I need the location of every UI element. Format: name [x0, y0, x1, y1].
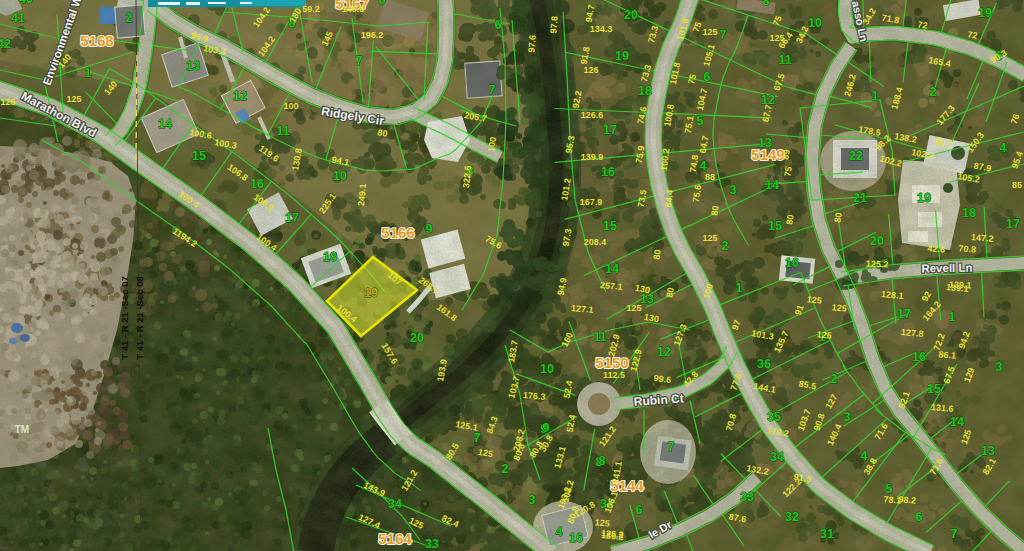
svg-text:249.1: 249.1 — [356, 183, 368, 206]
svg-text:1: 1 — [736, 281, 743, 295]
svg-text:5168: 5168 — [80, 32, 113, 49]
svg-text:14: 14 — [950, 415, 964, 429]
svg-text:80: 80 — [832, 212, 844, 224]
svg-text:196.2: 196.2 — [361, 30, 384, 40]
svg-text:9: 9 — [426, 222, 433, 236]
svg-text:18: 18 — [323, 250, 337, 264]
svg-text:15: 15 — [927, 382, 941, 396]
svg-text:5164: 5164 — [378, 530, 412, 547]
svg-text:80: 80 — [651, 249, 663, 261]
svg-text:2: 2 — [126, 11, 133, 25]
svg-text:3: 3 — [996, 360, 1003, 374]
svg-text:15: 15 — [768, 219, 782, 233]
svg-text:167.9: 167.9 — [580, 197, 603, 207]
svg-text:3: 3 — [730, 183, 737, 197]
svg-text:12: 12 — [657, 345, 671, 359]
svg-text:11: 11 — [778, 53, 791, 67]
svg-text:89: 89 — [780, 149, 792, 161]
svg-text:11: 11 — [276, 124, 289, 138]
svg-text:16: 16 — [785, 256, 799, 270]
svg-text:4: 4 — [1000, 141, 1007, 155]
svg-text:6: 6 — [495, 18, 502, 32]
svg-text:4: 4 — [556, 525, 563, 539]
svg-text:128.1: 128.1 — [881, 289, 904, 301]
svg-text:3: 3 — [844, 410, 851, 424]
svg-text:T 41 - R 21 -Sec 08: T 41 - R 21 -Sec 08 — [134, 276, 145, 359]
svg-text:88: 88 — [705, 172, 715, 182]
svg-text:33: 33 — [740, 490, 754, 504]
svg-text:20: 20 — [624, 8, 638, 22]
svg-text:75: 75 — [782, 166, 794, 178]
svg-text:98.2: 98.2 — [898, 494, 916, 505]
svg-text:5166: 5166 — [381, 224, 414, 241]
svg-text:72: 72 — [967, 29, 979, 41]
svg-text:41: 41 — [11, 11, 25, 25]
svg-text:80: 80 — [709, 205, 720, 216]
svg-text:3: 3 — [529, 493, 536, 507]
svg-text:20: 20 — [410, 331, 424, 345]
svg-text:16: 16 — [569, 531, 583, 545]
svg-text:2: 2 — [831, 372, 838, 386]
svg-text:7: 7 — [474, 431, 481, 445]
svg-text:100: 100 — [283, 101, 298, 111]
svg-text:125: 125 — [702, 27, 717, 37]
svg-text:36: 36 — [757, 357, 771, 371]
svg-text:40: 40 — [19, 0, 33, 6]
svg-text:34: 34 — [770, 450, 784, 464]
svg-text:18: 18 — [638, 84, 652, 98]
svg-text:33: 33 — [425, 537, 439, 551]
svg-text:19: 19 — [615, 49, 629, 63]
svg-text:131.6: 131.6 — [931, 402, 954, 414]
svg-text:257.1: 257.1 — [600, 280, 623, 292]
svg-text:9: 9 — [543, 421, 550, 435]
svg-text:97.6: 97.6 — [526, 35, 537, 53]
svg-text:139.9: 139.9 — [581, 152, 604, 162]
svg-text:15: 15 — [603, 219, 617, 233]
svg-text:18: 18 — [962, 206, 976, 220]
svg-text:97.8: 97.8 — [548, 16, 559, 34]
svg-text:6: 6 — [379, 0, 386, 7]
svg-text:19: 19 — [917, 191, 931, 205]
svg-text:TM: TM — [15, 424, 29, 435]
svg-text:11: 11 — [593, 330, 606, 344]
svg-text:8: 8 — [599, 454, 606, 468]
svg-text:6: 6 — [636, 503, 643, 517]
svg-text:42.6: 42.6 — [927, 243, 945, 254]
svg-text:T 41 - R 21 -Sec 07: T 41 - R 21 -Sec 07 — [119, 276, 130, 359]
svg-text:72: 72 — [917, 19, 929, 31]
svg-text:127.8: 127.8 — [901, 327, 924, 339]
svg-text:6: 6 — [916, 510, 923, 524]
svg-text:35: 35 — [767, 410, 781, 424]
svg-text:13: 13 — [186, 59, 200, 73]
svg-text:16: 16 — [601, 165, 615, 179]
svg-text:125: 125 — [0, 97, 15, 107]
svg-text:147.2: 147.2 — [971, 232, 994, 244]
svg-text:12: 12 — [233, 89, 247, 103]
svg-text:1: 1 — [85, 66, 92, 80]
svg-text:34: 34 — [388, 497, 402, 511]
svg-text:322.6: 322.6 — [461, 165, 473, 188]
svg-text:32: 32 — [785, 510, 799, 524]
svg-text:139.1: 139.1 — [946, 282, 969, 294]
svg-text:4: 4 — [700, 159, 707, 173]
svg-text:59.2: 59.2 — [302, 4, 320, 14]
svg-text:16: 16 — [912, 350, 926, 364]
svg-text:13: 13 — [981, 444, 995, 458]
svg-text:125: 125 — [816, 329, 832, 340]
svg-text:126: 126 — [583, 65, 598, 75]
svg-text:42: 42 — [0, 37, 11, 51]
svg-text:70.8: 70.8 — [958, 243, 976, 254]
svg-text:7: 7 — [720, 28, 727, 42]
svg-text:1: 1 — [872, 89, 879, 103]
svg-text:5: 5 — [697, 114, 704, 128]
svg-text:80: 80 — [377, 127, 389, 139]
svg-text:2: 2 — [930, 85, 937, 99]
svg-text:125: 125 — [66, 94, 81, 104]
svg-text:2: 2 — [722, 239, 729, 253]
svg-text:6: 6 — [704, 70, 711, 84]
svg-text:17: 17 — [897, 307, 911, 321]
svg-text:10: 10 — [333, 169, 347, 183]
svg-text:16: 16 — [250, 177, 264, 191]
svg-text:7: 7 — [668, 440, 675, 454]
svg-text:80: 80 — [664, 287, 676, 299]
svg-text:125.2: 125.2 — [866, 258, 889, 269]
svg-text:80: 80 — [784, 214, 795, 225]
svg-text:127.1: 127.1 — [571, 303, 594, 315]
svg-text:125: 125 — [769, 33, 784, 43]
svg-text:19: 19 — [978, 6, 992, 20]
svg-text:125: 125 — [702, 233, 717, 243]
svg-text:15: 15 — [192, 149, 206, 163]
svg-text:10: 10 — [540, 362, 554, 376]
svg-text:146.8: 146.8 — [342, 4, 365, 14]
svg-text:17: 17 — [285, 211, 299, 225]
svg-text:1: 1 — [949, 310, 956, 324]
svg-text:14: 14 — [765, 178, 779, 192]
svg-text:17: 17 — [1006, 217, 1020, 231]
svg-text:22: 22 — [849, 149, 863, 163]
svg-text:10: 10 — [808, 16, 822, 30]
svg-text:2: 2 — [502, 462, 509, 476]
svg-text:17: 17 — [603, 123, 617, 137]
svg-text:8: 8 — [763, 0, 770, 8]
svg-text:85: 85 — [1012, 180, 1022, 190]
svg-text:21: 21 — [853, 191, 867, 205]
svg-text:134.3: 134.3 — [590, 24, 613, 34]
svg-text:5149: 5149 — [751, 146, 784, 163]
svg-text:7: 7 — [951, 527, 958, 541]
svg-text:125: 125 — [831, 302, 847, 313]
svg-text:7: 7 — [489, 83, 496, 97]
svg-text:20: 20 — [870, 234, 884, 248]
svg-text:125: 125 — [626, 303, 641, 313]
svg-text:125: 125 — [806, 294, 822, 305]
svg-text:31: 31 — [820, 527, 834, 541]
svg-text:4: 4 — [861, 449, 868, 463]
svg-text:14: 14 — [158, 117, 172, 131]
svg-text:126.6: 126.6 — [581, 110, 604, 120]
svg-text:14: 14 — [605, 262, 619, 276]
svg-text:208.4: 208.4 — [584, 237, 607, 247]
svg-text:7: 7 — [356, 54, 363, 68]
svg-text:176.3: 176.3 — [523, 390, 546, 402]
svg-text:112.5: 112.5 — [603, 370, 625, 380]
svg-text:125: 125 — [594, 517, 610, 528]
svg-text:Revell Ln: Revell Ln — [921, 262, 972, 275]
svg-text:86.1: 86.1 — [938, 349, 956, 360]
svg-text:135.2: 135.2 — [601, 530, 624, 542]
svg-text:19: 19 — [364, 286, 378, 300]
